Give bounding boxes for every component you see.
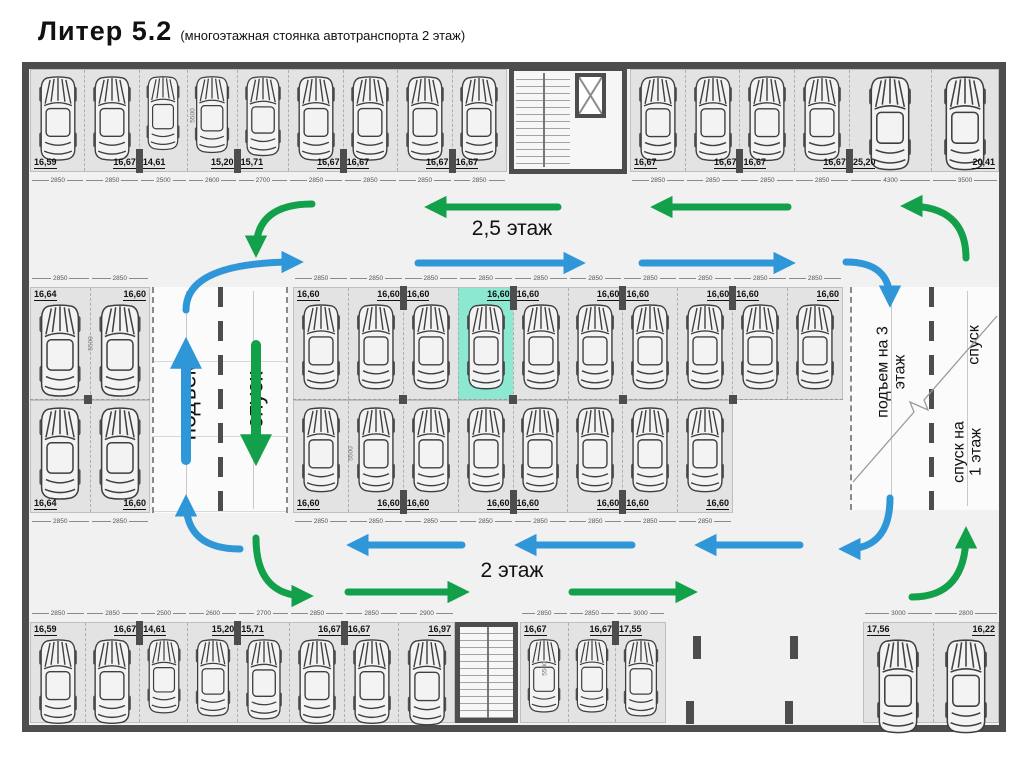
car-icon [38, 638, 78, 725]
parking-space[interactable]: 285016,60 [787, 288, 842, 399]
car-icon [685, 406, 725, 494]
parking-row-mid-left-bottom: 285016,64285016,60 [30, 400, 150, 513]
row-divider-columns [399, 395, 749, 404]
staircase-top [509, 66, 627, 174]
lane-divider-wall [929, 287, 934, 510]
title-main: Литер 5.2 [38, 16, 172, 46]
dimension-label: 2850 [515, 275, 567, 282]
parking-row-top-left: 285016,59285016,67250014,61260015,202700… [30, 69, 507, 172]
dimension-label: 2600 [189, 610, 236, 617]
parking-space[interactable]: 270015,71 [237, 70, 289, 171]
car-icon [301, 303, 341, 391]
parking-space[interactable]: 285016,59 [31, 623, 85, 722]
car-icon [93, 638, 133, 725]
parking-space[interactable]: 285016,60 [403, 401, 458, 512]
dimension-label: 2900 [400, 610, 453, 617]
depth-dimension: 5500 [542, 661, 549, 675]
parking-space[interactable]: 285016,67 [397, 70, 451, 171]
parking-space[interactable]: 260015,20 [187, 623, 237, 722]
dimension-label: 2850 [570, 610, 615, 617]
car-icon [521, 406, 561, 494]
parking-space[interactable]: 285016,60 [458, 401, 513, 512]
area-label: 16,59 [34, 625, 57, 636]
ramp-down-label: спуск [243, 372, 268, 429]
area-label: 16,60 [377, 499, 400, 510]
car-icon [39, 406, 82, 501]
dimension-label: 2850 [290, 177, 341, 184]
car-icon [146, 638, 181, 715]
car-icon [466, 406, 506, 494]
depth-dimension: 5500 [88, 336, 95, 350]
car-icon [411, 303, 451, 391]
parking-space[interactable]: 290016,97 [398, 623, 454, 722]
area-label: 16,67 [714, 158, 737, 169]
area-label: 16,67 [590, 625, 613, 636]
title-subtitle: (многоэтажная стоянка автотранспорта 2 э… [180, 28, 465, 43]
dimension-label: 2850 [624, 275, 676, 282]
area-label: 16,67 [114, 625, 137, 636]
dimension-label: 2850 [515, 518, 567, 525]
dimension-label: 2500 [141, 610, 186, 617]
area-label: 16,60 [123, 499, 146, 510]
car-icon [405, 75, 445, 162]
parking-row-mid-center-top: 285016,60285016,60285016,60285016,602850… [293, 287, 843, 400]
dimension-label: 2850 [32, 275, 89, 282]
dimension-label: 2850 [32, 518, 89, 525]
parking-space[interactable]: 285016,60 [677, 288, 732, 399]
area-label: 16,60 [487, 290, 510, 301]
column [686, 701, 694, 724]
parking-space[interactable]: 270015,71 [237, 623, 289, 722]
dimension-label: 2700 [239, 610, 288, 617]
area-label: 16,60 [597, 499, 620, 510]
area-label: 16,22 [972, 625, 995, 636]
parking-space[interactable]: 285016,60 [90, 401, 150, 512]
dimension-label: 2850 [350, 518, 402, 525]
area-label: 17,55 [619, 625, 642, 636]
car-icon [521, 303, 561, 391]
parking-space[interactable]: 285016,60 [567, 401, 622, 512]
dimension-label: 2850 [632, 177, 684, 184]
car-icon [244, 75, 281, 157]
ramp-up-label: подъем [176, 360, 201, 441]
area-label: 16,67 [347, 158, 370, 169]
parking-space[interactable]: 285016,67 [85, 623, 140, 722]
area-label: 16,67 [317, 158, 340, 169]
parking-space[interactable]: 300017,55 [615, 623, 665, 722]
car-icon [297, 638, 337, 725]
parking-row-top-right: 285016,67285016,67285016,67285016,674300… [630, 69, 999, 172]
area-label: 14,61 [143, 625, 166, 636]
area-label: 16,60 [407, 290, 430, 301]
area-label: 16,67 [743, 158, 766, 169]
dimension-label: 2850 [32, 177, 83, 184]
dimension-label: 2850 [789, 275, 841, 282]
dimension-label: 2500 [141, 177, 186, 184]
column [84, 395, 92, 404]
dimension-label: 3000 [865, 610, 932, 617]
car-icon [38, 75, 78, 162]
parking-space[interactable]: 285016,67 [289, 623, 344, 722]
stair-treads [516, 73, 570, 167]
dimension-label: 2850 [291, 610, 343, 617]
area-label: 16,60 [407, 499, 430, 510]
elevator-shaft [575, 73, 606, 118]
depth-dimension: 5500 [190, 108, 197, 122]
car-icon [527, 638, 561, 714]
dimension-label: 2850 [86, 177, 137, 184]
area-label: 16,60 [707, 290, 730, 301]
dimension-label: 2850 [32, 610, 84, 617]
elevator-x-icon [579, 77, 602, 114]
parking-row-bottom-right: 300017,56280016,22 [863, 622, 999, 723]
parking-space[interactable]: 285016,60 [677, 401, 732, 512]
parking-space[interactable]: 285016,67 [739, 70, 794, 171]
column [790, 636, 798, 659]
area-label: 16,67 [456, 158, 479, 169]
parking-space[interactable]: 285016,60 [348, 401, 403, 512]
dimension-label: 2850 [87, 610, 139, 617]
column [785, 701, 793, 724]
parking-space[interactable]: 285016,67 [685, 70, 740, 171]
dimension-label: 2850 [522, 610, 567, 617]
parking-space[interactable]: 285016,67 [343, 70, 397, 171]
car-icon [406, 638, 446, 727]
parking-space[interactable]: 280016,22 [933, 623, 998, 722]
dimension-label: 2850 [741, 177, 793, 184]
dimension-label: 2850 [679, 275, 731, 282]
area-label: 16,67 [113, 158, 136, 169]
car-icon [92, 75, 132, 162]
car-icon [575, 638, 609, 714]
dimension-label: 2850 [405, 518, 457, 525]
ramp-up-3-label: подъем на 3 этаж [875, 326, 910, 418]
dimension-label: 2850 [734, 275, 786, 282]
dimension-label: 2600 [189, 177, 236, 184]
parking-space[interactable]: 285016,64 [31, 288, 90, 399]
parking-space[interactable]: 285016,60 [90, 288, 150, 399]
dimension-label: 2850 [399, 177, 450, 184]
area-label: 16,64 [34, 290, 57, 301]
parking-space[interactable]: 285016,67 [794, 70, 849, 171]
ramp-down-1-label: спуск на 1 этаж [951, 416, 986, 488]
parking-space[interactable]: 250014,61 [139, 70, 187, 171]
car-icon [301, 406, 341, 494]
car-icon [356, 406, 396, 494]
dimension-label: 2850 [350, 275, 402, 282]
area-label: 16,60 [626, 290, 649, 301]
car-icon [876, 638, 920, 735]
parking-row-mid-center-bottom: 285016,60285016,60285016,60285016,602850… [293, 400, 733, 513]
dimension-label: 2800 [935, 610, 997, 617]
parking-space[interactable]: 350020,41 [931, 70, 998, 171]
parking-space[interactable]: 285016,60 [513, 401, 568, 512]
dimension-label: 2850 [295, 275, 347, 282]
lane-divider-wall [218, 287, 223, 513]
area-label: 16,59 [34, 158, 57, 169]
car-icon [98, 406, 141, 501]
dimension-label: 2850 [345, 177, 396, 184]
car-icon [194, 75, 230, 154]
car-icon [352, 638, 392, 725]
car-icon [576, 303, 616, 391]
dimension-label: 2850 [460, 275, 512, 282]
area-label: 16,64 [34, 499, 57, 510]
parking-space[interactable]: 285016,60 [622, 401, 677, 512]
parking-space[interactable]: 285016,67 [631, 70, 685, 171]
car-icon [630, 303, 670, 391]
dimension-label: 2850 [92, 518, 149, 525]
lower-aisle-label: 2 этаж [432, 559, 592, 583]
area-label: 16,60 [517, 290, 540, 301]
upper-aisle-label: 2,5 этаж [432, 217, 592, 241]
page-title: Литер 5.2(многоэтажная стоянка автотранс… [38, 16, 465, 47]
area-label: 16,60 [123, 290, 146, 301]
parking-space[interactable]: 285016,64 [31, 401, 90, 512]
car-icon [351, 75, 391, 162]
dimension-label: 2850 [346, 610, 398, 617]
parking-space-selected[interactable]: 285016,60 [458, 288, 513, 399]
car-icon [693, 75, 733, 162]
column [693, 636, 701, 659]
ramp-down-label: спуск [965, 325, 982, 364]
car-icon [98, 303, 141, 398]
car-icon [466, 303, 506, 391]
area-label: 16,60 [517, 499, 540, 510]
parking-row-bottom-left: 285016,59285016,67250014,61260015,202700… [30, 622, 455, 723]
dimension-label: 2850 [687, 177, 739, 184]
car-icon [39, 303, 82, 398]
parking-space[interactable]: 250014,61 [139, 623, 187, 722]
area-label: 16,67 [524, 625, 547, 636]
area-label: 20,41 [972, 158, 995, 169]
car-icon [195, 638, 231, 718]
area-label: 16,67 [348, 625, 371, 636]
parking-space[interactable]: 285016,60 [622, 288, 677, 399]
car-icon [747, 75, 787, 162]
parking-space[interactable]: 285016,60 [403, 288, 458, 399]
area-label: 16,60 [817, 290, 840, 301]
dimension-label: 2700 [239, 177, 288, 184]
car-icon [685, 303, 725, 391]
car-icon [795, 303, 835, 391]
car-icon [630, 406, 670, 494]
dimension-label: 2850 [405, 275, 457, 282]
parking-space[interactable]: 430025,20 [849, 70, 931, 171]
dimension-label: 2850 [460, 518, 512, 525]
area-label: 16,97 [428, 625, 451, 636]
car-icon [575, 406, 615, 494]
dimension-label: 2850 [796, 177, 848, 184]
parking-space[interactable]: 285016,67 [288, 70, 342, 171]
area-label: 16,60 [297, 290, 320, 301]
dimension-label: 2850 [295, 518, 347, 525]
dimension-label: 3500 [933, 177, 997, 184]
dimension-label: 2850 [569, 518, 621, 525]
area-label: 16,67 [634, 158, 657, 169]
parking-space[interactable]: 285016,60 [294, 288, 348, 399]
car-icon [740, 303, 780, 391]
parking-space[interactable]: 285016,60 [513, 288, 568, 399]
area-label: 15,20 [211, 158, 234, 169]
area-label: 25,20 [853, 158, 876, 169]
dimension-label: 3000 [617, 610, 664, 617]
area-label: 16,60 [377, 290, 400, 301]
parking-space[interactable]: 285016,67 [344, 623, 399, 722]
car-icon [296, 75, 336, 162]
area-label: 16,60 [736, 290, 759, 301]
car-icon [638, 75, 678, 162]
ramp-left: подъем спуск [152, 287, 288, 513]
area-label: 16,67 [426, 158, 449, 169]
parking-space[interactable]: 285016,60 [568, 288, 623, 399]
parking-space[interactable]: 285016,60 [348, 288, 403, 399]
area-label: 16,67 [823, 158, 846, 169]
dimension-label: 2850 [454, 177, 505, 184]
area-label: 15,71 [241, 158, 264, 169]
area-label: 16,67 [318, 625, 341, 636]
parking-space[interactable]: 285016,60 [294, 401, 348, 512]
car-icon [460, 75, 500, 162]
parking-space[interactable]: 285016,67 [568, 623, 616, 722]
area-label: 15,20 [212, 625, 235, 636]
area-label: 16,60 [297, 499, 320, 510]
dimension-label: 2850 [570, 275, 622, 282]
dimension-label: 4300 [851, 177, 930, 184]
area-label: 16,60 [706, 499, 729, 510]
parking-space[interactable]: 285016,60 [732, 288, 787, 399]
area-label: 16,60 [597, 290, 620, 301]
area-label: 16,60 [626, 499, 649, 510]
dimension-label: 2850 [92, 275, 149, 282]
car-icon [622, 638, 658, 718]
staircase-bottom [455, 622, 518, 723]
parking-floor-plan: Литер 5.2(многоэтажная стоянка автотранс… [0, 0, 1024, 759]
car-icon [245, 638, 283, 721]
parking-space[interactable]: 285016,67 [452, 70, 506, 171]
depth-dimension: 5500 [348, 446, 355, 460]
dimension-label: 2850 [624, 518, 676, 525]
car-icon [944, 638, 988, 735]
car-icon [146, 75, 181, 151]
car-icon [356, 303, 396, 391]
area-label: 16,60 [487, 499, 510, 510]
ramp-right: подъем на 3 этаж спуск спуск на 1 этаж [850, 287, 999, 510]
area-label: 15,71 [241, 625, 264, 636]
area-label: 17,56 [867, 625, 890, 636]
car-icon [411, 406, 451, 494]
parking-space[interactable]: 300017,56 [864, 623, 933, 722]
area-label: 14,61 [143, 158, 166, 169]
parking-space[interactable]: 285016,67 [84, 70, 138, 171]
parking-space[interactable]: 285016,59 [31, 70, 84, 171]
car-icon [802, 75, 842, 162]
dimension-label: 2850 [679, 518, 731, 525]
